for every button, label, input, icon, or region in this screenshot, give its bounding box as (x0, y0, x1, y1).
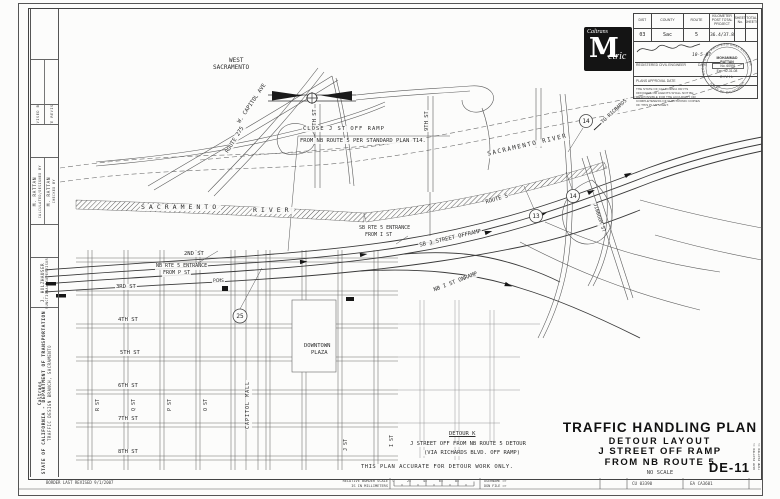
map-note-sb5-entrance-2: FROM I ST (364, 233, 393, 239)
ruler-tick-20: 20 (407, 479, 411, 483)
date-plotted-note: DATE PLOTTED => (752, 443, 756, 470)
relative-border-scale-2: IS IN MILLIMETERS (306, 484, 388, 488)
map-label-q-st: Q ST (132, 398, 138, 412)
revision-box-empty-2 (44, 60, 58, 105)
date-label: DATE (698, 63, 707, 67)
branch-name: TRAFFIC DESIGN BRANCH, SACRAMENTO (47, 345, 52, 441)
ruler-tick-80: 80 (455, 479, 459, 483)
left-title-strip: REVISED BY DATE REVISED M. RATTAN CALCUL… (30, 9, 59, 477)
plan-title: TRAFFIC HANDLING PLAN (562, 420, 758, 435)
dgn-file-field: DGN FILE => (484, 484, 506, 488)
spacer-box (31, 124, 58, 158)
dist-header: DIST (634, 14, 652, 28)
signature-date-value: 10-5-07 (692, 53, 711, 58)
revision-boxes (31, 59, 58, 105)
map-label-river-west: RIVER (252, 207, 294, 214)
title-block-headers: DIST COUNTY ROUTE KILOMETER POST TOTAL P… (634, 14, 757, 29)
note-detour-line1: J STREET OFF FROM NB ROUTE 5 DETOUR (409, 441, 527, 447)
map-label-9th-st: 9TH ST (424, 110, 430, 132)
marker-14-b: 14 (566, 193, 580, 200)
county-value: Sac (652, 29, 684, 41)
map-label-j-st: J ST (344, 438, 350, 452)
kilometer-post-value: 36.4/37.8 (710, 29, 736, 41)
map-label-2nd-st: 2ND ST (183, 251, 205, 257)
prepared-by-block: M. RATTAN CALCULATED/DESIGNED BY M. RATT… (31, 157, 58, 225)
logo-etric-text: etric (608, 51, 626, 62)
total-sheets-value (746, 29, 757, 41)
sheet-no-value (735, 29, 746, 41)
relative-border-scale-1: RELATIVE BORDER SCALE (306, 479, 388, 483)
supervisor-block: J. HOLZHAUSER FUNCTIONAL SUPERVISOR (31, 257, 58, 308)
map-note-nb5-entrance-2: FROM P ST (162, 271, 191, 277)
revised-by-label: REVISED BY (36, 105, 40, 125)
plan-sheet: REGISTERED PROFESSIONAL ENGINEER STATE O… (0, 0, 780, 499)
title-block-values: 03 Sac 5 36.4/37.8 (634, 29, 757, 42)
marker-14-a: 14 (579, 118, 593, 125)
county-header: COUNTY (652, 14, 684, 28)
map-label-7th-st: 7TH ST (117, 416, 139, 422)
map-label-4th-st: 4TH ST (117, 317, 139, 323)
cu-number: CU 03390 (632, 481, 652, 486)
map-label-downtown: DOWNTOWN (303, 343, 332, 349)
map-label-sacramento-river-west: SACRAMENTO (140, 204, 221, 211)
kilometer-post-header: KILOMETER POST TOTAL PROJECT (710, 14, 736, 28)
route-value: 5 (684, 29, 710, 41)
map-label-pcms: PCMS (212, 279, 225, 284)
time-plotted-note: TIME PLOTTED => (757, 443, 761, 470)
map-note-nb5-entrance: NB RTE 5 ENTRANCE (155, 264, 208, 270)
border-revised-note: BORDER LAST REVISED 9/1/2007 (46, 480, 113, 485)
date-revised-label: DATE REVISED (50, 105, 54, 125)
marker-13: 13 (529, 213, 543, 220)
checked-by-label: CHECKED BY (52, 179, 56, 203)
plans-approval-label: PLANS APPROVAL DATE (636, 79, 676, 83)
note-detour-k-title: DETOUR K (448, 431, 477, 437)
map-label-3rd-st: 3RD ST (115, 284, 137, 290)
map-label-plaza: PLAZA (310, 350, 329, 356)
total-sheets-header: TOTAL SHEETS (746, 14, 757, 28)
map-label-capitol-mall: CAPITOL MALL (246, 380, 252, 430)
designed-by-label: CALCULATED/DESIGNED BY (38, 165, 42, 218)
ea-number: EA CA3601 (690, 481, 713, 486)
map-label-r-st: R ST (96, 398, 102, 412)
marker-25: 25 (233, 313, 247, 320)
note-close-ramp-line2: FROM NB ROUTE 5 PER STANDARD PLAN T14. (299, 138, 427, 144)
registered-engineer-label: REGISTERED CIVIL ENGINEER (636, 63, 686, 67)
map-label-8th-st: 8TH ST (117, 449, 139, 455)
note-close-ramp-line1: CLOSE J ST OFF RAMP (302, 126, 386, 132)
map-label-6th-st: 6TH ST (117, 383, 139, 389)
route-header: ROUTE (684, 14, 710, 28)
sheet-no-header: SHEET No. (735, 14, 746, 28)
ruler-tick-60: 60 (439, 479, 443, 483)
map-label-5th-st: 5TH ST (119, 350, 141, 356)
caltrans-metric-logo: Caltrans M etric (584, 27, 632, 71)
map-label-west-sacramento: SACRAMENTO (212, 65, 250, 72)
ruler-tick-40: 40 (423, 479, 427, 483)
map-label-i-st: I ST (390, 434, 396, 448)
map-label-p-st: P ST (168, 398, 174, 412)
map-label-o-st: O ST (204, 398, 210, 412)
stamp-expiration: Exp. 12-31-08 (710, 69, 744, 73)
map-note-sb5-entrance: SB RTE 5 ENTRANCE (358, 226, 411, 232)
revision-box-empty-1 (31, 60, 44, 105)
note-detour-line2: (VIA RICHARDS BLVD. OFF RAMP) (423, 450, 521, 456)
plan-subtitle-2: J STREET OFF RAMP (562, 446, 758, 457)
revision-labels: REVISED BY DATE REVISED (31, 104, 58, 125)
electronic-copies-disclaimer: THE STATE OF CALIFORNIA OR ITS OFFICERS … (634, 86, 702, 108)
agency-block: Caltrans STATE OF CALIFORNIA - DEPARTMEN… (31, 307, 58, 478)
sheet-number-de11: DE-11 (698, 460, 750, 475)
spacer-box-2 (31, 224, 58, 258)
note-plan-accuracy: THIS PLAN ACCURATE FOR DETOUR WORK ONLY. (360, 464, 514, 470)
dist-value: 03 (634, 29, 652, 41)
ruler-tick-0: 0 (393, 479, 395, 483)
supervisor-label: FUNCTIONAL SUPERVISOR (45, 258, 49, 309)
username-field: USERNAME => (484, 479, 506, 483)
plan-subtitle-1: DETOUR LAYOUT (562, 436, 758, 446)
stamp-discipline: CIVIL (710, 75, 744, 79)
